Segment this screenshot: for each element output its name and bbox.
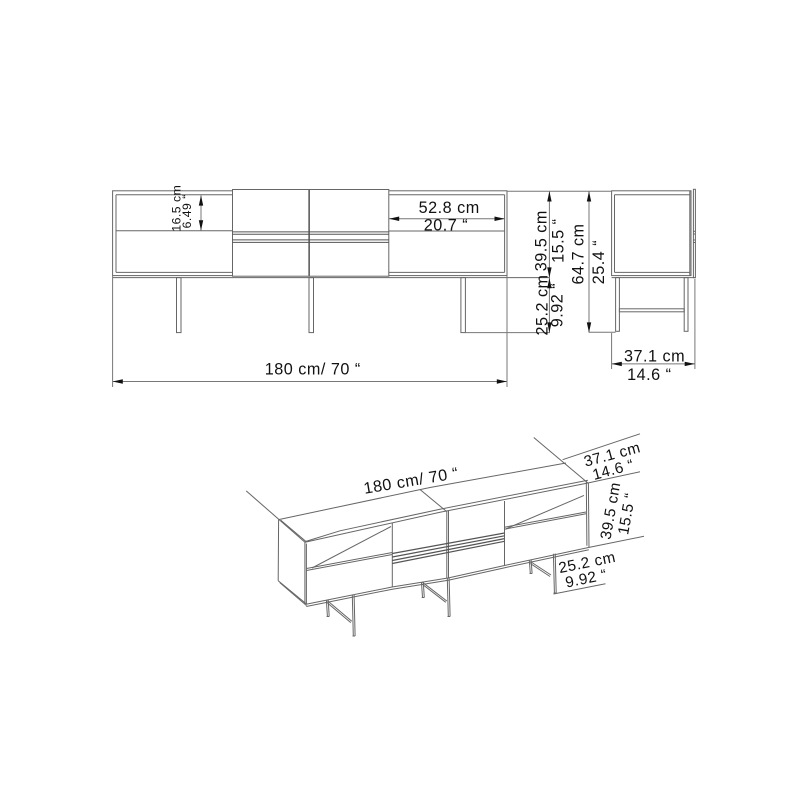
- svg-text:15.5 “: 15.5 “: [550, 218, 568, 262]
- svg-text:25.4 “: 25.4 “: [590, 240, 608, 284]
- svg-text:6.49 “: 6.49 “: [180, 194, 194, 228]
- svg-text:39.5 cm: 39.5 cm: [533, 210, 551, 271]
- svg-text:52.8 cm: 52.8 cm: [419, 199, 480, 217]
- svg-text:14.6 “: 14.6 “: [627, 366, 671, 384]
- svg-text:37.1 cm: 37.1 cm: [624, 348, 685, 366]
- svg-text:9.92 “: 9.92 “: [549, 283, 567, 327]
- svg-text:180 cm/ 70 “: 180 cm/ 70 “: [265, 361, 361, 379]
- svg-text:20.7 “: 20.7 “: [424, 217, 468, 235]
- svg-text:64.7 cm: 64.7 cm: [570, 223, 588, 284]
